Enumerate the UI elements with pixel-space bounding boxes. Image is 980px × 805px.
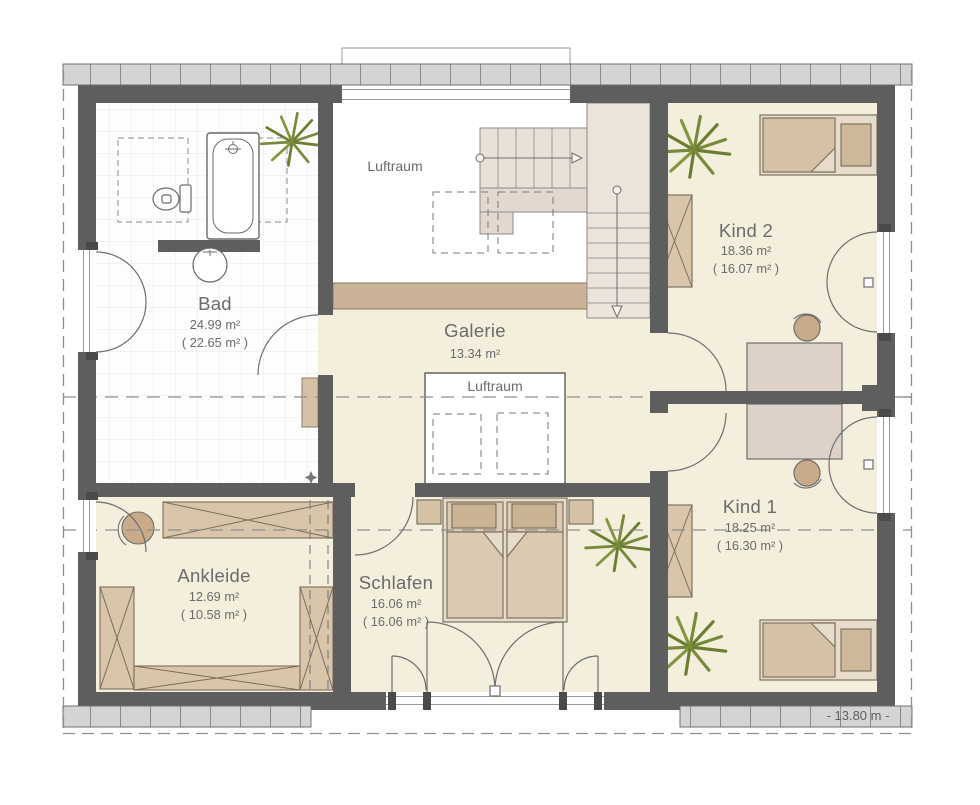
window-luftraum-top xyxy=(342,85,570,103)
luftraum-void-box xyxy=(425,373,565,490)
gutter-band-bottom-right xyxy=(680,706,912,727)
window-kind2-right xyxy=(877,232,895,333)
nightstand-right xyxy=(569,500,593,524)
bath-shelf xyxy=(302,378,318,427)
wardrobe-ankleide-top xyxy=(163,502,333,538)
sink xyxy=(193,248,227,282)
bed-kind1 xyxy=(760,620,877,680)
window-ankleide-left xyxy=(78,500,96,552)
gutter-band-top xyxy=(63,64,912,85)
gutter-band-bottom-left xyxy=(63,706,311,727)
window-handle-kind1 xyxy=(864,460,873,469)
gallery-edge-band xyxy=(333,283,587,309)
chair-kind2 xyxy=(794,314,821,341)
bed-kind2 xyxy=(760,115,877,175)
window-kind1-right xyxy=(877,417,895,513)
desk-kind2 xyxy=(747,343,842,398)
dormer-outline xyxy=(342,48,570,65)
desk-kind1 xyxy=(747,404,842,459)
wardrobe-ankleide-left xyxy=(100,587,134,689)
pillow-right xyxy=(512,504,556,528)
nightstand-left xyxy=(417,500,441,524)
wardrobe-ankleide-bottom xyxy=(134,666,300,690)
schlafen-furniture xyxy=(417,498,593,622)
floor-plan-drawing xyxy=(0,0,980,805)
window-handle-kind2 xyxy=(864,278,873,287)
exterior-wall-right xyxy=(877,85,895,710)
window-bad-left xyxy=(78,250,96,352)
bathtub xyxy=(207,133,259,239)
floor-plan-upper-storey: Bad 24.99 m² ( 22.65 m² ) Luftraum Galer… xyxy=(0,0,980,805)
pillow-left xyxy=(452,504,496,528)
double-bed xyxy=(443,498,567,622)
exterior-wall-left xyxy=(78,85,96,710)
terrace-door-handle xyxy=(490,686,500,696)
